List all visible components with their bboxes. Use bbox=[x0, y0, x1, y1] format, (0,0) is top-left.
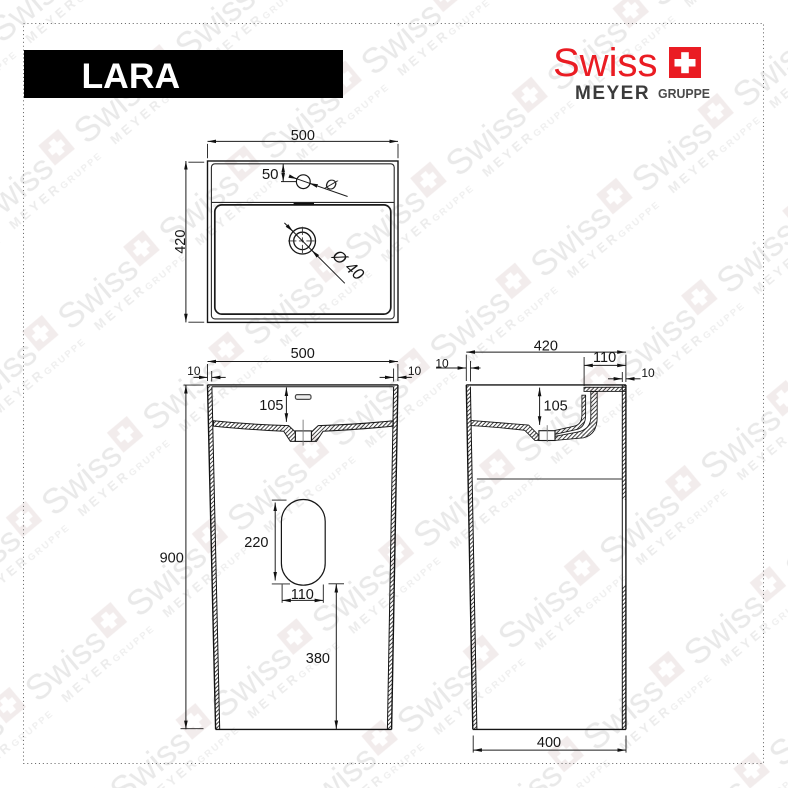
svg-text:MEYER: MEYER bbox=[575, 83, 650, 104]
svg-text:220: 220 bbox=[244, 535, 268, 551]
svg-text:400: 400 bbox=[537, 735, 561, 751]
svg-text:500: 500 bbox=[291, 346, 315, 362]
svg-text:GRUPPE: GRUPPE bbox=[658, 86, 710, 101]
svg-text:500: 500 bbox=[291, 128, 315, 144]
svg-text:900: 900 bbox=[160, 551, 184, 567]
svg-text:420: 420 bbox=[173, 230, 189, 254]
svg-text:420: 420 bbox=[534, 338, 558, 354]
svg-text:10: 10 bbox=[435, 356, 449, 370]
svg-text:10: 10 bbox=[408, 364, 422, 378]
svg-text:105: 105 bbox=[544, 399, 568, 415]
svg-text:50: 50 bbox=[262, 166, 279, 183]
svg-text:105: 105 bbox=[259, 398, 283, 414]
svg-text:LARA: LARA bbox=[82, 56, 181, 96]
svg-text:110: 110 bbox=[291, 587, 314, 603]
svg-text:10: 10 bbox=[187, 364, 201, 378]
svg-text:Swiss: Swiss bbox=[553, 41, 657, 85]
svg-text:110: 110 bbox=[593, 350, 616, 366]
svg-text:380: 380 bbox=[306, 651, 330, 667]
svg-text:10: 10 bbox=[641, 366, 655, 380]
